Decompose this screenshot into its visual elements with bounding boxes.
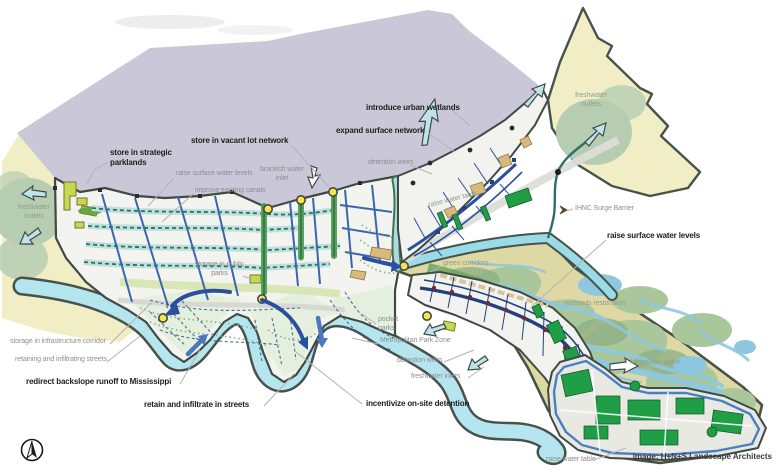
label-storage-infrastructure-corridor: storage in infrastructure corridor <box>10 338 106 347</box>
masterplan-map: store in strategic parklands store in va… <box>0 0 780 470</box>
label-brackish-water-inlet: brackish water inlet <box>258 166 306 184</box>
label-improve-existing-canals: improve existing canals <box>195 187 265 196</box>
annotation-raise-surface-water: raise surface water levels <box>607 231 700 241</box>
label-detention-weirs-south: detention weirs <box>397 357 443 366</box>
label-freshwater-inlets: freshwater inlets <box>411 373 460 382</box>
label-ihnc-surge-barrier: IHNC Surge Barrier <box>575 205 634 214</box>
label-metropolitan-park-zone: Metropolitan Park Zone <box>380 337 460 346</box>
annotation-expand-surface-network: expand surface network <box>336 126 424 136</box>
label-freshwater-outlets-east: freshwater outlets <box>566 92 616 110</box>
annotation-incentivize-detention: incentivize on-site detention <box>366 399 469 409</box>
annotation-redirect-backslope: redirect backslope runoff to Mississippi <box>26 377 171 387</box>
image-credit: image: H+N+S Landscape Architects <box>633 452 772 461</box>
annotation-store-strategic-parklands: store in strategic parklands <box>110 148 202 169</box>
label-storage-public-parks: storage in public parks <box>192 261 247 279</box>
label-freshwater-outlets-west: freshwater outlets <box>10 204 58 222</box>
compass-icon <box>22 440 43 461</box>
annotation-retain-infiltrate: retain and infiltrate in streets <box>144 400 249 410</box>
label-raise-surface-water-levels: raise surface water levels <box>176 170 252 179</box>
annotation-store-vacant-lot: store in vacant lot network <box>191 136 288 146</box>
label-retaining-infiltrating-streets: retaining and infiltrating streets <box>15 356 107 365</box>
label-green-corridors: green corridors <box>443 260 489 269</box>
label-wetlands-restoration: wetlands restoration <box>563 300 627 309</box>
annotation-introduce-urban-wetlands: introduce urban wetlands <box>366 103 460 113</box>
label-pocket-parks: pocket parks <box>378 316 416 334</box>
label-detention-weirs-lake: detention weirs <box>368 159 414 168</box>
label-raise-water-table-south: raise water table <box>546 456 596 465</box>
label-freshwater-outlet: freshwater outlet <box>628 359 682 368</box>
